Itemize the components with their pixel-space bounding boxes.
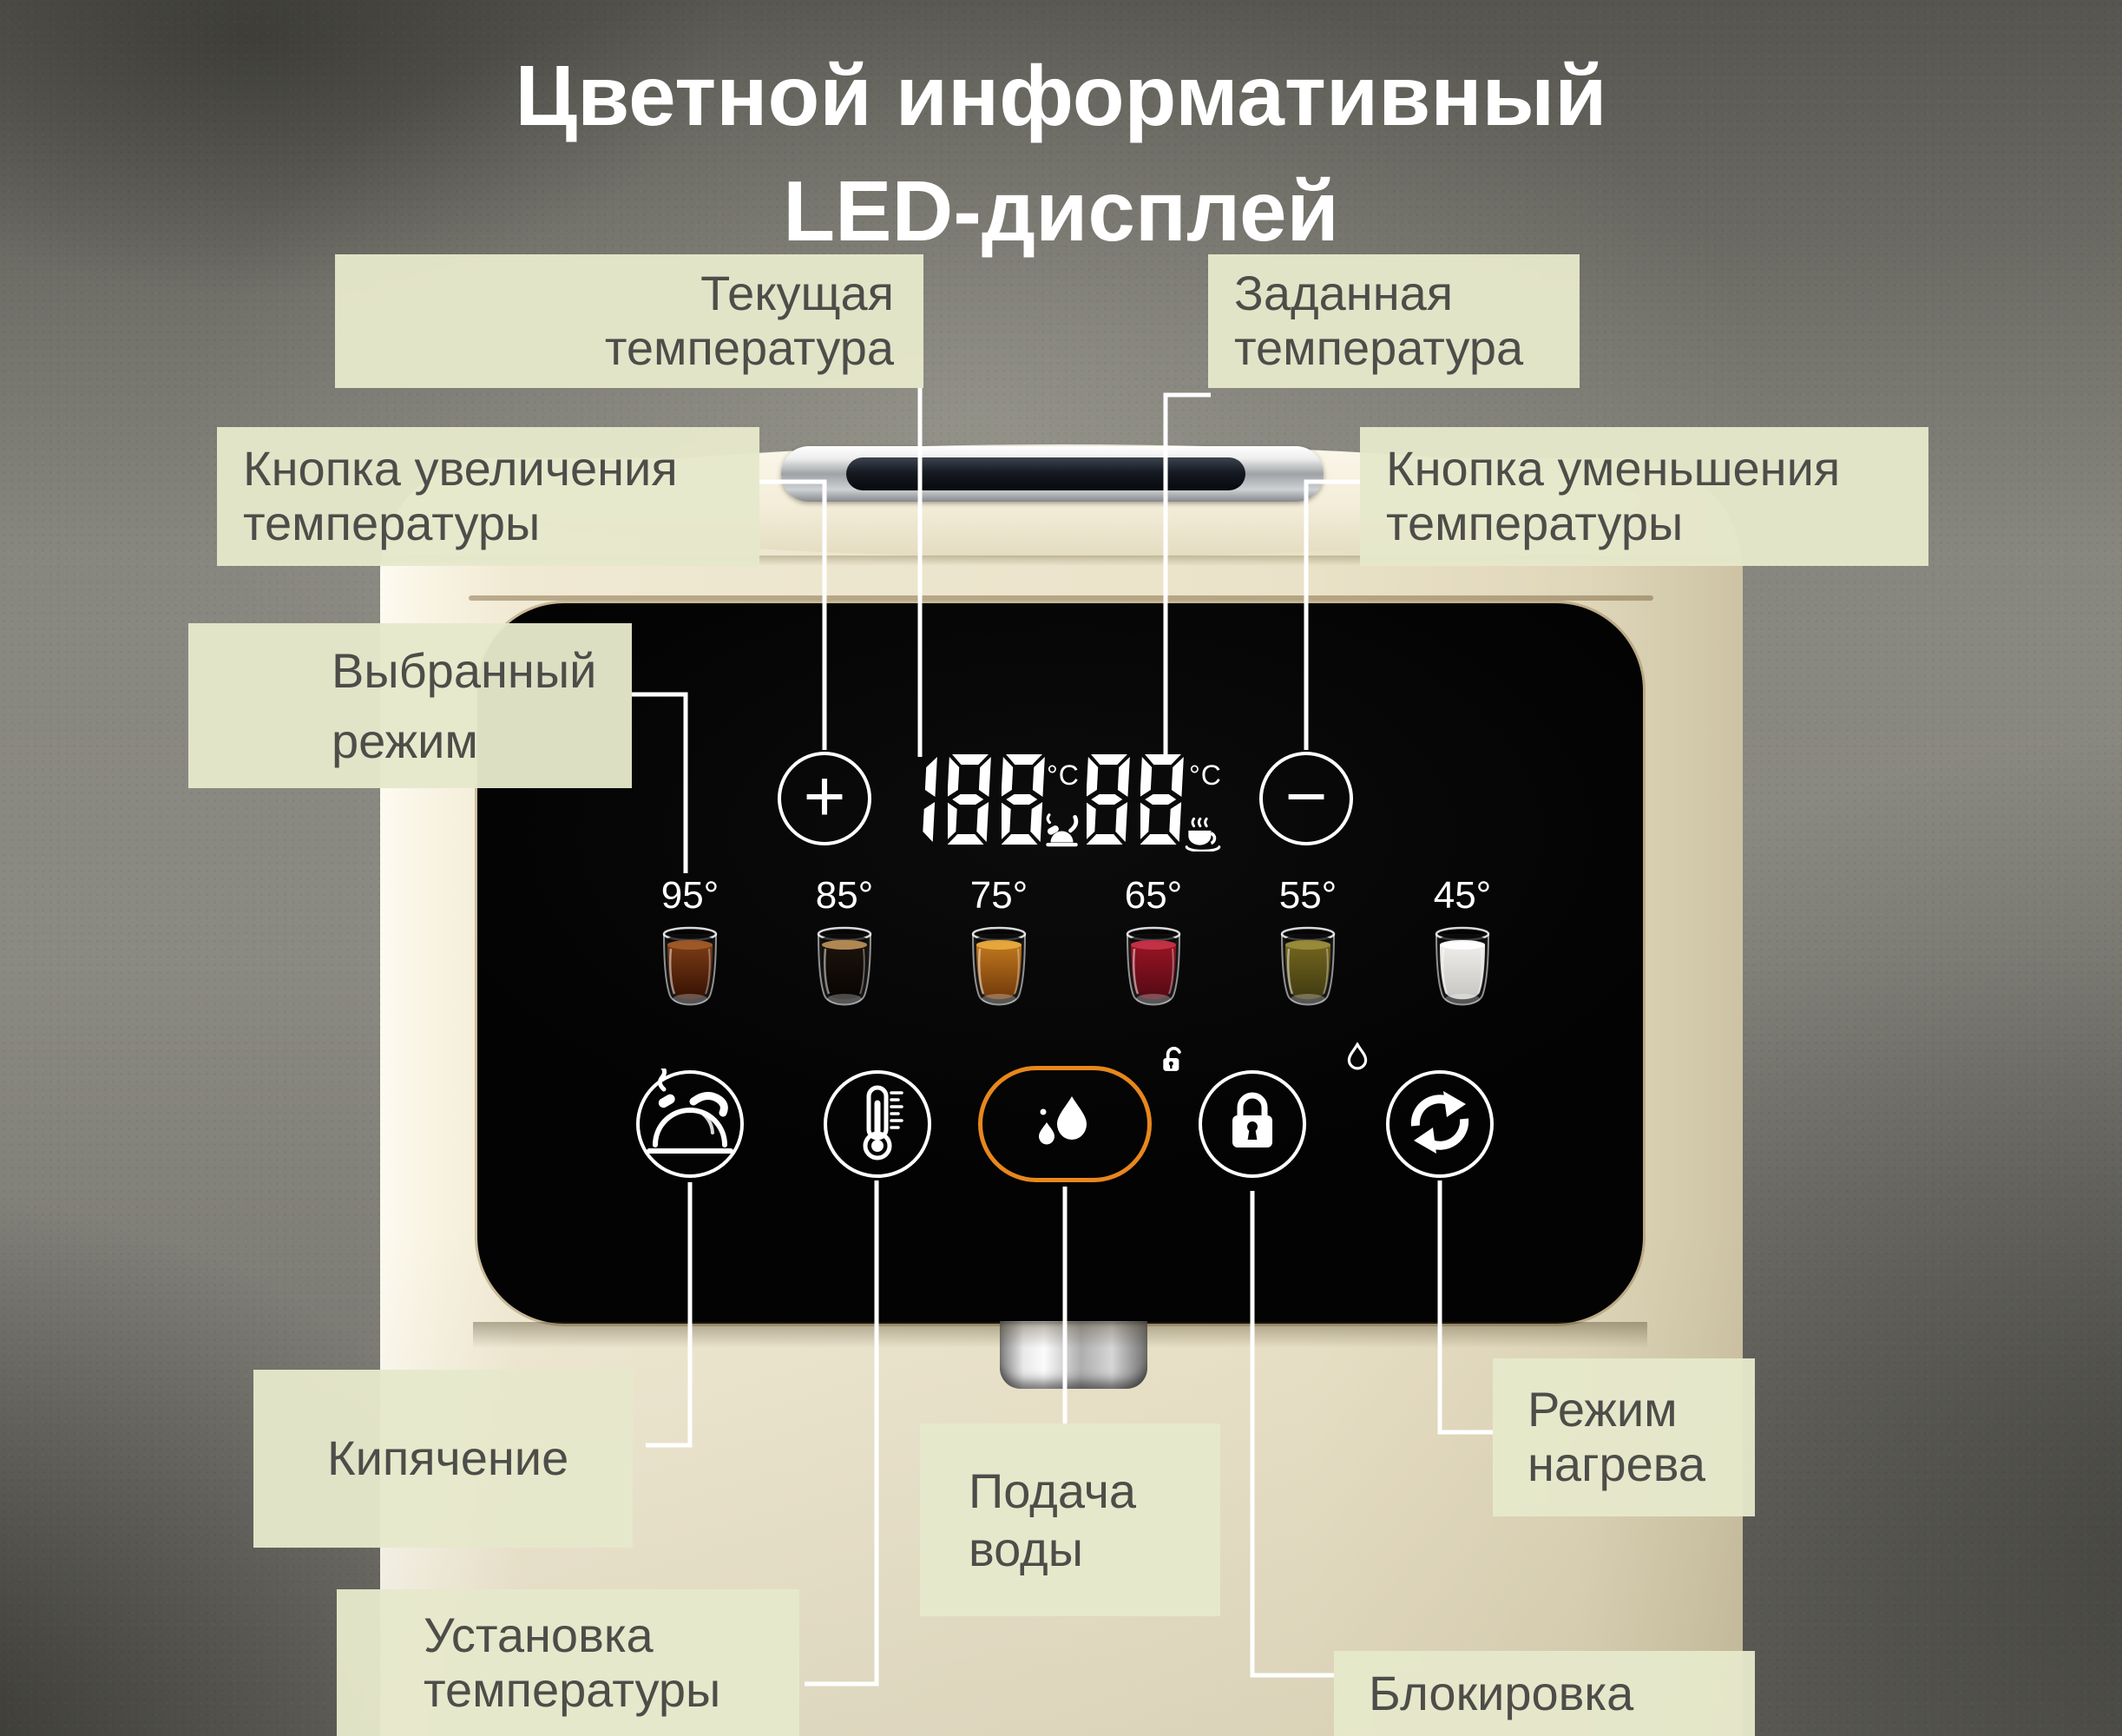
preset-label: 45° xyxy=(1393,874,1532,917)
preset-label: 75° xyxy=(930,874,1068,917)
label-boil: Кипячение xyxy=(253,1370,633,1548)
glass-icon xyxy=(653,923,727,1018)
glass-icon xyxy=(1425,923,1500,1018)
led-display-panel: + °C °C − 95° xyxy=(477,603,1643,1324)
current-temp-unit: °C xyxy=(1047,759,1080,792)
temp-preset-water: 45° xyxy=(1393,874,1532,1023)
temp-increase-button[interactable]: + xyxy=(778,752,871,845)
preset-label: 55° xyxy=(1238,874,1377,917)
boil-button[interactable] xyxy=(636,1070,744,1178)
minus-icon: − xyxy=(1284,759,1327,832)
boiling-indicator-kettle-icon xyxy=(1040,812,1083,856)
infographic-page: + °C °C − 95° xyxy=(0,0,2122,1736)
panel-shadow xyxy=(473,1322,1647,1348)
lock-button[interactable] xyxy=(1199,1070,1306,1178)
temp-preset-amber-tea: 75° xyxy=(930,874,1068,1023)
glass-icon xyxy=(807,923,882,1018)
current-temperature-display xyxy=(894,753,1047,845)
heat-mode-button[interactable] xyxy=(1386,1070,1494,1178)
temp-preset-black-tea: 95° xyxy=(621,874,759,1023)
keep-warm-cup-icon xyxy=(1182,815,1224,856)
glass-icon xyxy=(1271,923,1345,1018)
temp-preset-hibiscus: 65° xyxy=(1084,874,1223,1023)
label-set-temperature: Заданная температура xyxy=(1208,254,1580,388)
label-decrease-button: Кнопка уменьшения температуры xyxy=(1360,427,1928,566)
set-temp-unit: °C xyxy=(1189,759,1222,792)
unlock-icon xyxy=(1160,1044,1187,1078)
label-temp-setting: Установка температуры xyxy=(337,1589,799,1736)
lid-dark-inset xyxy=(846,457,1245,490)
cycle-icon xyxy=(1386,1069,1494,1180)
label-current-temperature: Текущая температура xyxy=(335,254,923,388)
droplet-icon xyxy=(1345,1042,1370,1075)
glass-icon xyxy=(1116,923,1191,1018)
label-lock: Блокировка xyxy=(1334,1651,1755,1736)
water-supply-button[interactable] xyxy=(978,1066,1152,1182)
label-increase-button: Кнопка увеличения температуры xyxy=(217,427,759,566)
label-heat-mode: Режим нагрева xyxy=(1493,1358,1755,1516)
preset-label: 65° xyxy=(1084,874,1223,917)
kettle-icon xyxy=(636,1069,744,1180)
temp-preset-coffee: 85° xyxy=(775,874,914,1023)
lock-icon xyxy=(1199,1069,1306,1180)
preset-label: 85° xyxy=(775,874,914,917)
set-temperature-display xyxy=(1087,753,1186,845)
thermometer-icon xyxy=(824,1069,931,1180)
temp-decrease-button[interactable]: − xyxy=(1259,752,1353,845)
plus-icon: + xyxy=(803,759,845,832)
label-water-supply: Подача воды xyxy=(920,1424,1220,1616)
page-title: Цветной информативный LED-дисплей xyxy=(0,38,2122,270)
preset-label: 95° xyxy=(621,874,759,917)
water-drops-icon xyxy=(1011,1069,1119,1180)
temp-setting-button[interactable] xyxy=(824,1070,931,1178)
glass-icon xyxy=(962,923,1036,1018)
panel-top-seam xyxy=(469,595,1653,601)
temp-preset-green-tea: 55° xyxy=(1238,874,1377,1023)
label-selected-mode: Выбранный режим xyxy=(188,623,632,788)
